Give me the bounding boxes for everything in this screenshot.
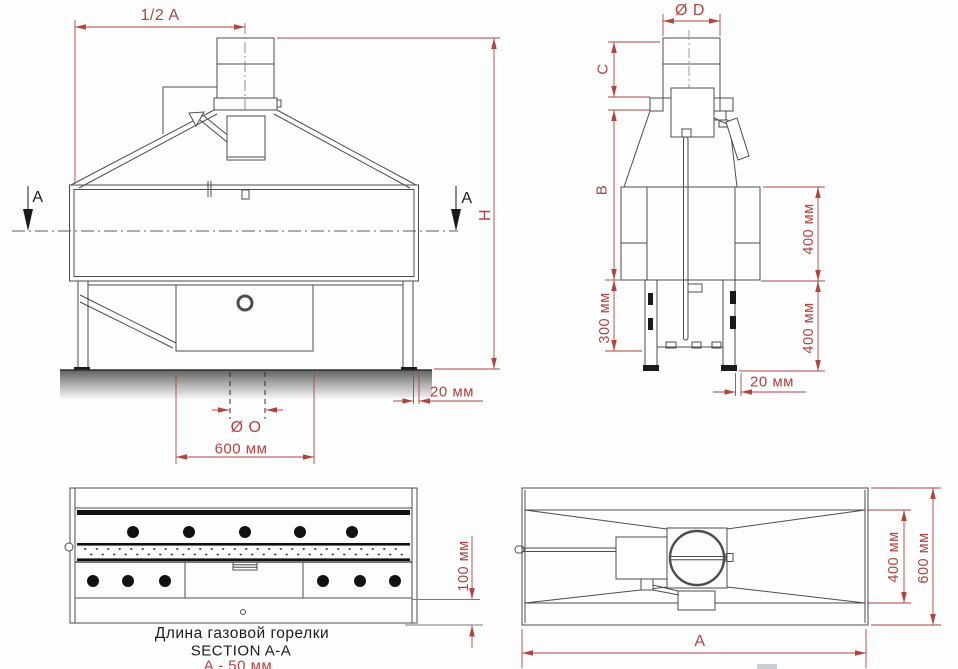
front-drawer-hole: [238, 296, 252, 310]
top-bottom-box: [678, 591, 715, 610]
side-view-dimensions: [605, 14, 825, 396]
side-fan-box: [671, 88, 714, 137]
top-view-dimensions: [522, 488, 941, 668]
dim-label-300mm: 300 мм: [597, 292, 613, 343]
cropped-artifact: [757, 664, 777, 669]
top-flue-circle: [670, 531, 724, 585]
side-damper-flap: [726, 118, 749, 160]
section-arrow-right: [451, 186, 461, 231]
dim-label-top-600mm: 600 мм: [916, 532, 932, 583]
top-chimney-base: [667, 528, 727, 588]
engineering-drawing-canvas: 1/2 A A A H 20 мм Ø O 600 мм Ø D C B 300…: [0, 0, 958, 669]
burner-holes-lower: [87, 575, 401, 587]
dim-label-400mm-lower: 400 мм: [801, 302, 817, 353]
dim-label-400mm-upper: 400 мм: [801, 203, 817, 254]
side-handle: [65, 543, 73, 551]
dim-label-600mm: 600 мм: [215, 441, 268, 458]
burner-holes-upper: [127, 526, 358, 538]
front-hood-box: [227, 116, 265, 160]
dim-label-height-h: H: [477, 209, 495, 221]
ground-shading: [60, 371, 432, 399]
dim-label-half-a: 1/2 A: [141, 7, 180, 25]
caption-burner-length: Длина газовой горелки: [155, 625, 329, 643]
top-motor-box: [616, 537, 667, 579]
dim-label-100mm: 100 мм: [456, 540, 472, 591]
dim-label-length-a: A: [694, 633, 705, 651]
front-view: [12, 23, 461, 419]
top-view: [515, 488, 868, 625]
side-body: [621, 187, 760, 280]
dim-label-c: C: [595, 63, 612, 74]
section-view: [65, 488, 483, 625]
section-marker-right-label: A: [461, 190, 472, 208]
dim-label-flue-o: Ø O: [231, 419, 262, 437]
dim-label-b: B: [594, 185, 611, 196]
dim-label-front-20mm: 20 мм: [430, 384, 474, 401]
side-view: [621, 30, 760, 371]
section-marker-left-label: A: [32, 189, 43, 207]
dim-label-side-20mm: 20 мм: [750, 374, 794, 391]
caption-burner-formula: A - 50 мм: [204, 658, 272, 669]
dim-label-diameter-d: Ø D: [675, 2, 705, 20]
dim-label-top-400mm: 400 мм: [886, 531, 902, 582]
side-rod: [684, 137, 689, 340]
vent-arrow-icon: [189, 112, 204, 126]
